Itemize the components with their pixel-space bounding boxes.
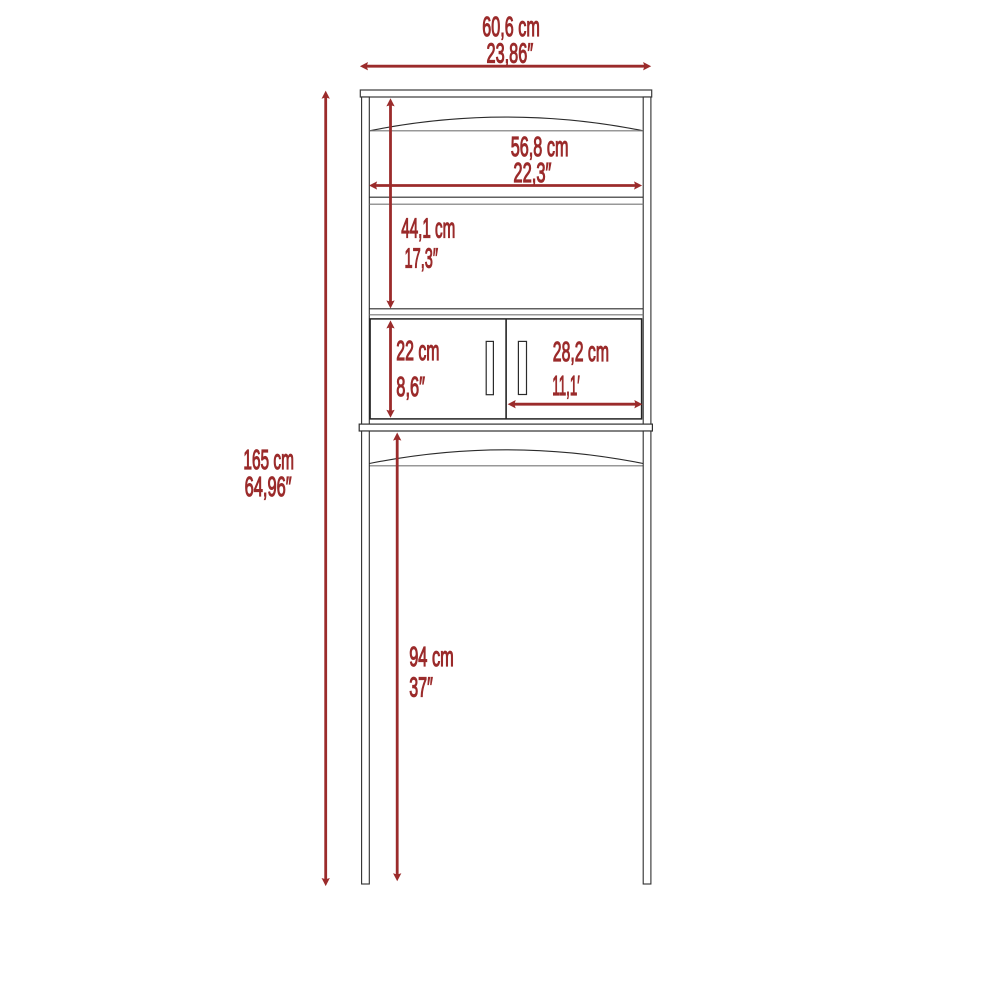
- svg-text:64,96″: 64,96″: [245, 471, 292, 502]
- svg-text:22,3″: 22,3″: [513, 157, 551, 188]
- svg-text:22 cm: 22 cm: [396, 335, 439, 366]
- svg-text:28,2 cm: 28,2 cm: [553, 336, 609, 367]
- svg-text:11,1′: 11,1′: [552, 370, 580, 401]
- svg-text:8,6″: 8,6″: [396, 371, 425, 402]
- svg-text:37″: 37″: [409, 672, 433, 703]
- svg-text:44,1 cm: 44,1 cm: [401, 212, 455, 243]
- svg-text:17,3″: 17,3″: [405, 243, 439, 274]
- svg-text:94 cm: 94 cm: [409, 641, 454, 672]
- svg-text:23,86″: 23,86″: [487, 38, 534, 69]
